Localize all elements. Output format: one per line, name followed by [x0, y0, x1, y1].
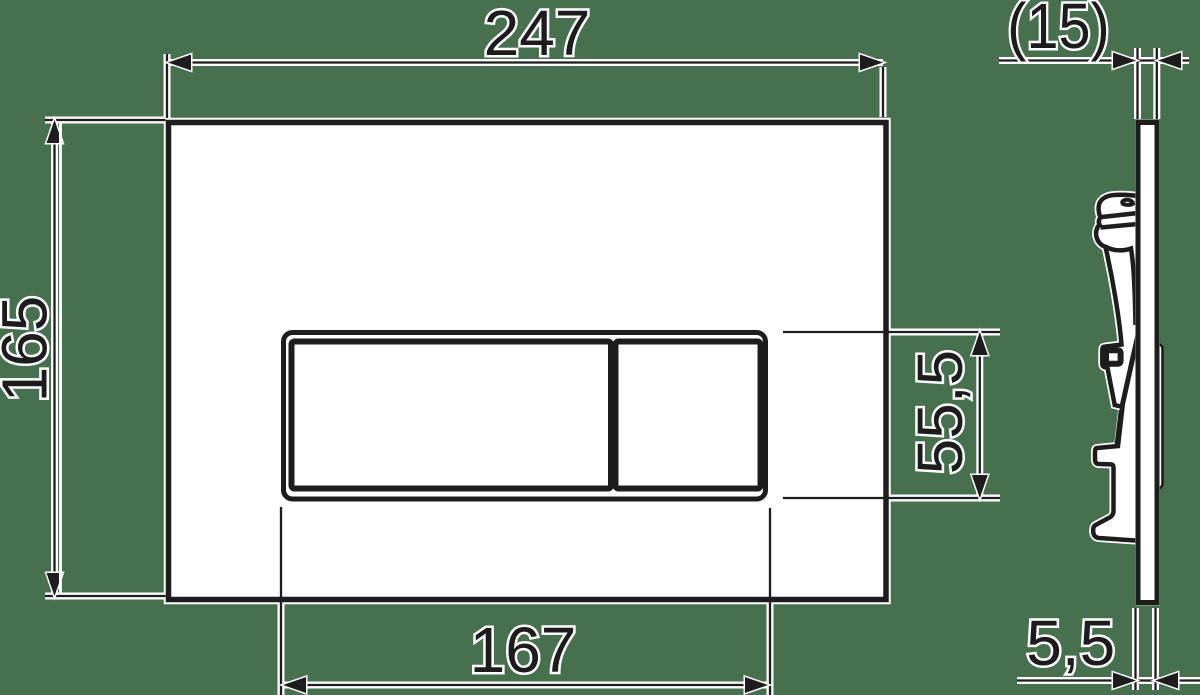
svg-text:(15): (15) [1007, 0, 1109, 62]
svg-text:167: 167 [470, 614, 577, 686]
svg-text:55,5: 55,5 [904, 350, 976, 475]
svg-text:247: 247 [484, 0, 591, 69]
svg-text:5,5: 5,5 [1026, 607, 1115, 679]
svg-text:165: 165 [0, 296, 61, 403]
